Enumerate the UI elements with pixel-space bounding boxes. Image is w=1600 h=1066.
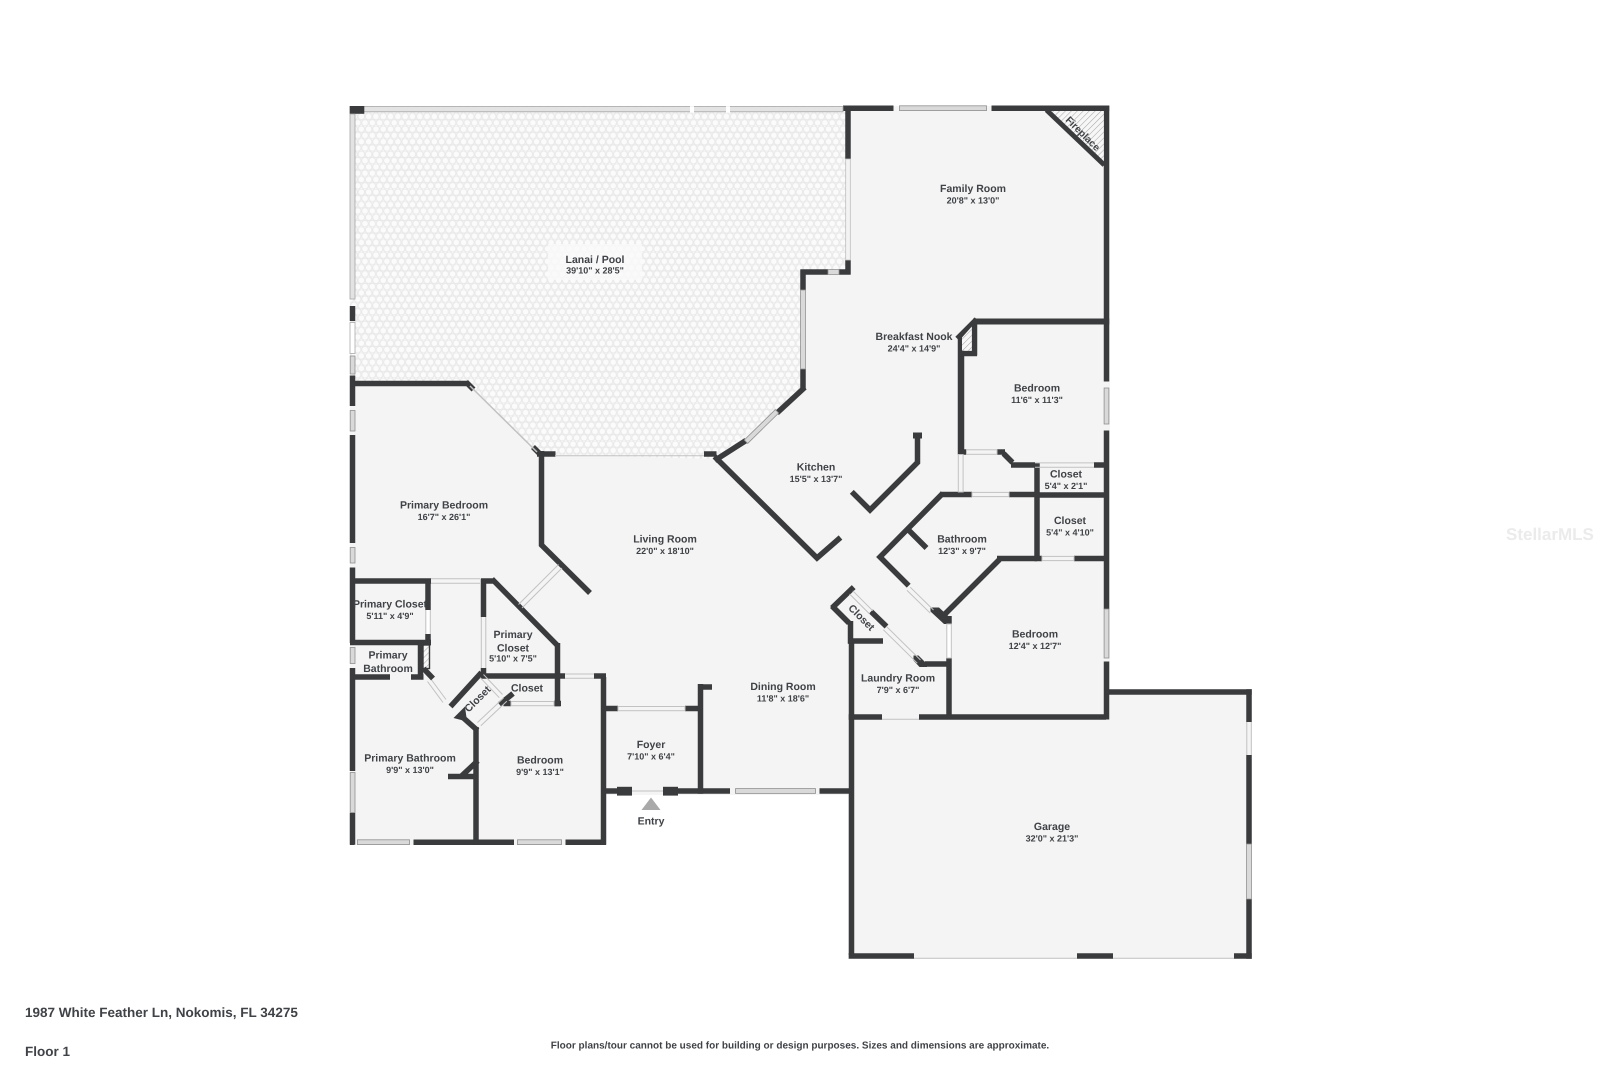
svg-text:7'9" x 6'7": 7'9" x 6'7" bbox=[877, 685, 920, 695]
svg-text:Bathroom: Bathroom bbox=[363, 663, 413, 675]
svg-text:Primary: Primary bbox=[493, 629, 532, 641]
svg-text:Garage: Garage bbox=[1034, 821, 1070, 833]
svg-text:Bathroom: Bathroom bbox=[937, 534, 987, 546]
svg-text:1987 White Feather Ln, Nokomis: 1987 White Feather Ln, Nokomis, FL 34275 bbox=[25, 1005, 298, 1020]
svg-text:Bedroom: Bedroom bbox=[517, 755, 563, 767]
svg-text:5'11" x 4'9": 5'11" x 4'9" bbox=[366, 611, 413, 621]
svg-text:Closet: Closet bbox=[1054, 515, 1087, 527]
svg-text:Floor plans/tour cannot be use: Floor plans/tour cannot be used for buil… bbox=[551, 1041, 1050, 1052]
svg-text:12'4" x 12'7": 12'4" x 12'7" bbox=[1009, 641, 1062, 651]
svg-text:Breakfast Nook: Breakfast Nook bbox=[875, 331, 952, 343]
svg-text:Entry: Entry bbox=[638, 816, 665, 828]
svg-text:Floor 1: Floor 1 bbox=[25, 1044, 70, 1059]
svg-text:Closet: Closet bbox=[511, 683, 544, 695]
svg-text:Bedroom: Bedroom bbox=[1012, 629, 1058, 641]
svg-text:Primary Bathroom: Primary Bathroom bbox=[364, 753, 456, 765]
svg-text:12'3" x 9'7": 12'3" x 9'7" bbox=[938, 546, 986, 556]
svg-text:9'9" x 13'0": 9'9" x 13'0" bbox=[386, 765, 434, 775]
svg-text:Primary Bedroom: Primary Bedroom bbox=[400, 500, 488, 512]
svg-text:Primary: Primary bbox=[368, 650, 407, 662]
svg-text:5'4" x 4'10": 5'4" x 4'10" bbox=[1046, 528, 1094, 538]
svg-text:Closet: Closet bbox=[1050, 469, 1083, 481]
svg-text:Family Room: Family Room bbox=[940, 183, 1006, 195]
svg-text:15'5" x 13'7": 15'5" x 13'7" bbox=[790, 474, 843, 484]
svg-text:Living Room: Living Room bbox=[633, 534, 697, 546]
svg-text:7'10" x 6'4": 7'10" x 6'4" bbox=[627, 752, 675, 762]
svg-text:11'8" x 18'6": 11'8" x 18'6" bbox=[757, 694, 809, 704]
svg-text:16'7" x 26'1": 16'7" x 26'1" bbox=[418, 512, 471, 522]
svg-text:Kitchen: Kitchen bbox=[797, 462, 836, 474]
svg-text:5'10" x 7'5": 5'10" x 7'5" bbox=[489, 654, 537, 664]
svg-text:Lanai / Pool: Lanai / Pool bbox=[566, 254, 625, 266]
svg-text:Bedroom: Bedroom bbox=[1014, 383, 1060, 395]
svg-text:5'4" x 2'1": 5'4" x 2'1" bbox=[1045, 481, 1088, 491]
svg-text:20'8" x 13'0": 20'8" x 13'0" bbox=[947, 196, 1000, 206]
svg-text:Primary Closet: Primary Closet bbox=[353, 599, 428, 611]
svg-text:22'0" x 18'10": 22'0" x 18'10" bbox=[636, 546, 694, 556]
svg-text:StellarMLS: StellarMLS bbox=[1506, 525, 1594, 544]
svg-text:39'10" x 28'5": 39'10" x 28'5" bbox=[566, 266, 624, 276]
svg-text:Laundry Room: Laundry Room bbox=[861, 673, 935, 685]
svg-text:9'9" x 13'1": 9'9" x 13'1" bbox=[516, 767, 564, 777]
svg-text:Foyer: Foyer bbox=[637, 739, 666, 751]
svg-text:24'4" x 14'9": 24'4" x 14'9" bbox=[888, 344, 941, 354]
svg-text:Dining Room: Dining Room bbox=[750, 681, 815, 693]
svg-text:32'0" x 21'3": 32'0" x 21'3" bbox=[1026, 834, 1079, 844]
svg-text:11'6" x 11'3": 11'6" x 11'3" bbox=[1011, 395, 1063, 405]
